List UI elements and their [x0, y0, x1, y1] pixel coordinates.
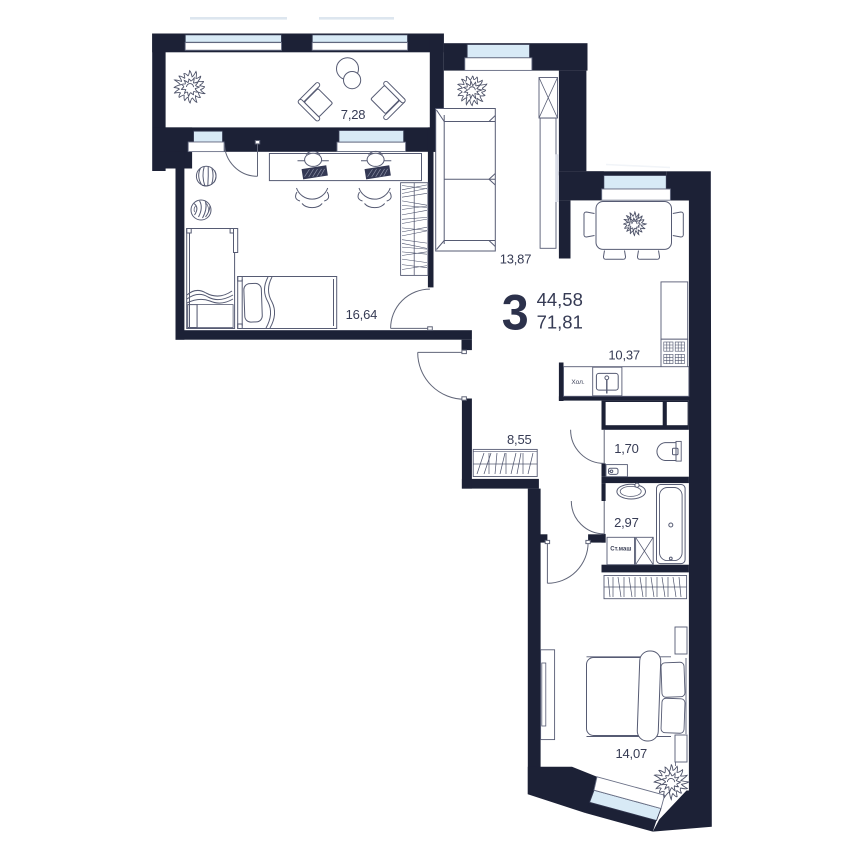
svg-text:1,70: 1,70: [614, 441, 639, 456]
svg-text:2,97: 2,97: [614, 515, 639, 530]
svg-text:71,81: 71,81: [537, 312, 583, 333]
svg-text:14,07: 14,07: [616, 746, 648, 761]
svg-text:Ст.маш: Ст.маш: [610, 547, 631, 553]
svg-text:16,64: 16,64: [346, 307, 378, 322]
svg-text:Хол.: Хол.: [571, 379, 585, 386]
svg-text:10,37: 10,37: [608, 348, 640, 363]
svg-text:44,58: 44,58: [537, 289, 583, 310]
svg-text:13,87: 13,87: [500, 252, 532, 267]
svg-text:7,28: 7,28: [341, 107, 366, 122]
svg-text:3: 3: [502, 285, 529, 341]
svg-text:8,55: 8,55: [507, 432, 532, 447]
